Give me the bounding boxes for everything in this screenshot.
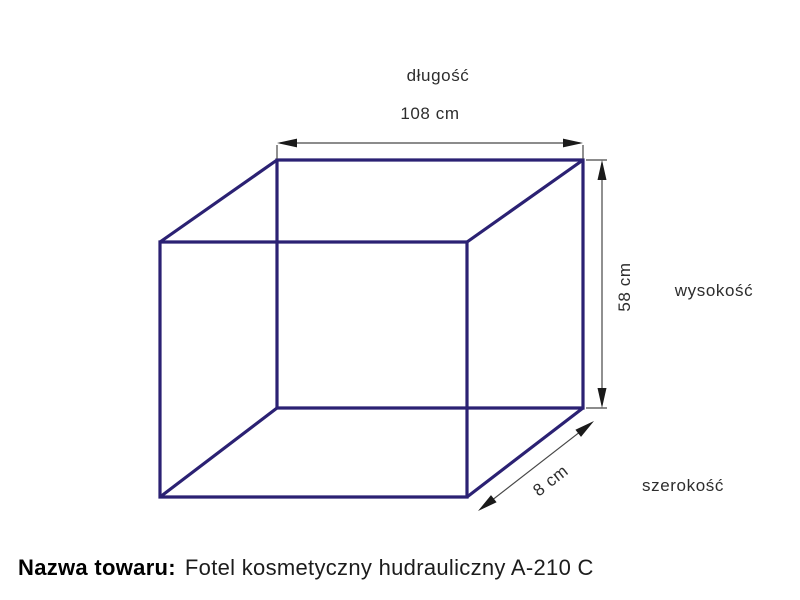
- product-name-caption: Nazwa towaru:: [18, 555, 176, 580]
- height-arrow-up-icon: [598, 160, 607, 180]
- product-name-line: Nazwa towaru:Fotel kosmetyczny hudraulic…: [18, 555, 594, 581]
- width-arrow-upper-icon: [575, 421, 594, 437]
- length-dimension-value: 108 cm: [390, 104, 470, 124]
- height-extension-lines: [586, 160, 607, 408]
- width-arrow-lower-icon: [478, 495, 497, 511]
- length-dimension-label: długość: [394, 66, 482, 86]
- box-back-face: [277, 160, 583, 408]
- length-arrow-left-icon: [277, 139, 297, 148]
- box-front-face: [160, 242, 467, 497]
- height-dimension-value: 58 cm: [615, 254, 635, 320]
- length-extension-lines: [277, 145, 583, 159]
- dimension-lines: [277, 143, 607, 509]
- length-arrow-right-icon: [563, 139, 583, 148]
- width-dimension-label: szerokość: [635, 476, 731, 496]
- box-wireframe: [160, 160, 583, 497]
- height-arrow-down-icon: [598, 388, 607, 408]
- product-name-value: Fotel kosmetyczny hudrauliczny A-210 C: [185, 555, 594, 580]
- product-dimension-diagram: długość 108 cm 58 cm wysokość 8 cm szero…: [0, 0, 800, 600]
- height-dimension-label: wysokość: [668, 281, 760, 301]
- dimension-arrowheads: [277, 139, 607, 511]
- box-depth-edges: [160, 160, 583, 497]
